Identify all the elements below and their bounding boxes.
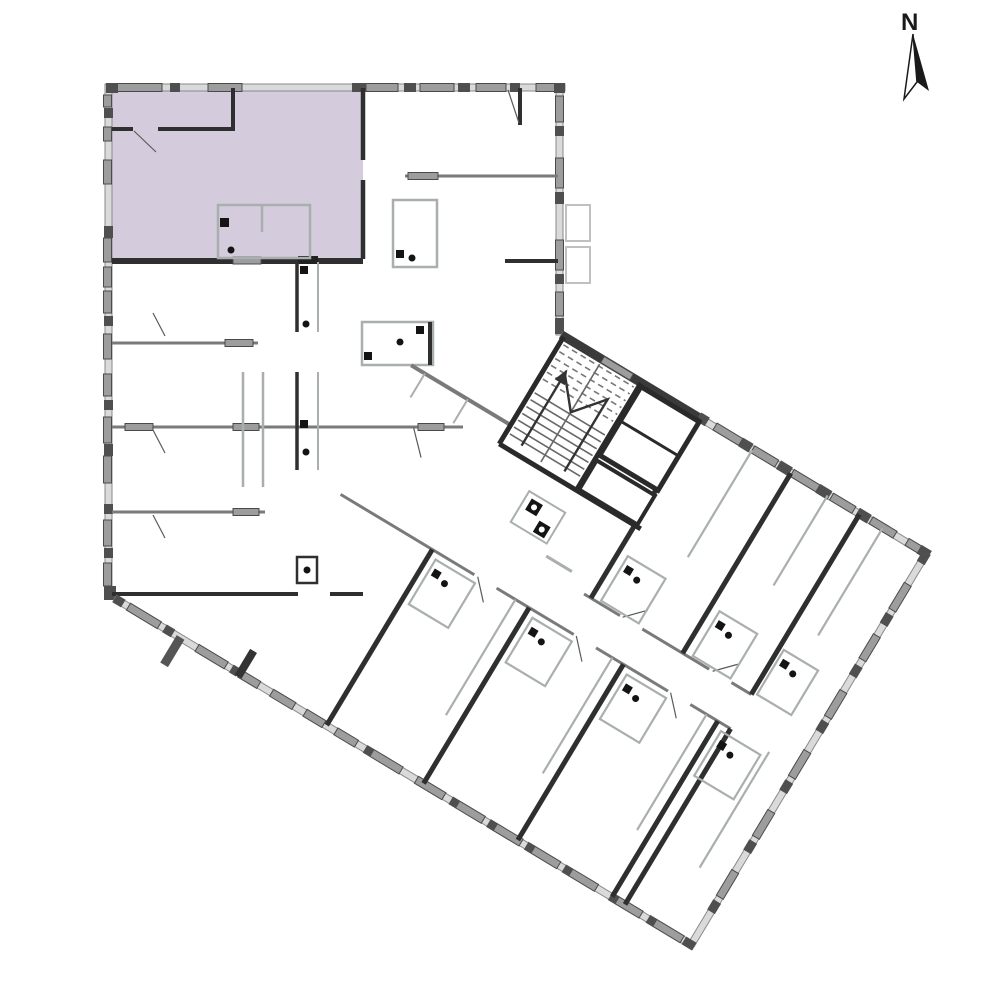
door-swing — [153, 515, 165, 538]
corridor-walls — [331, 444, 761, 745]
floor-plan-canvas: N — [0, 0, 1000, 1000]
lobby-wc — [505, 491, 596, 571]
unit-divider-walls — [327, 335, 860, 904]
door-swing — [508, 90, 519, 123]
unit-interiors-lower — [370, 554, 770, 868]
rotated-wing — [99, 203, 933, 974]
service-shaft — [297, 372, 318, 470]
stair-core — [462, 337, 705, 591]
bathroom-cluster — [362, 322, 433, 365]
balcony-outline — [566, 247, 590, 283]
door-swing — [402, 427, 432, 457]
service-shaft — [297, 557, 317, 583]
floor-plan-page: N — [0, 0, 1000, 1000]
door-swing — [153, 313, 165, 336]
door-swing — [713, 655, 738, 681]
north-label: N — [901, 9, 918, 36]
door-swing — [153, 430, 165, 453]
highlighted-unit[interactable] — [112, 88, 363, 259]
exterior-walls-rotated-wing — [99, 203, 933, 974]
balcony-outline — [566, 205, 590, 241]
service-shaft — [297, 262, 318, 332]
north-arrow: N — [901, 9, 929, 99]
bathroom-cluster — [393, 200, 437, 267]
entrance-wall-stub — [160, 635, 184, 667]
